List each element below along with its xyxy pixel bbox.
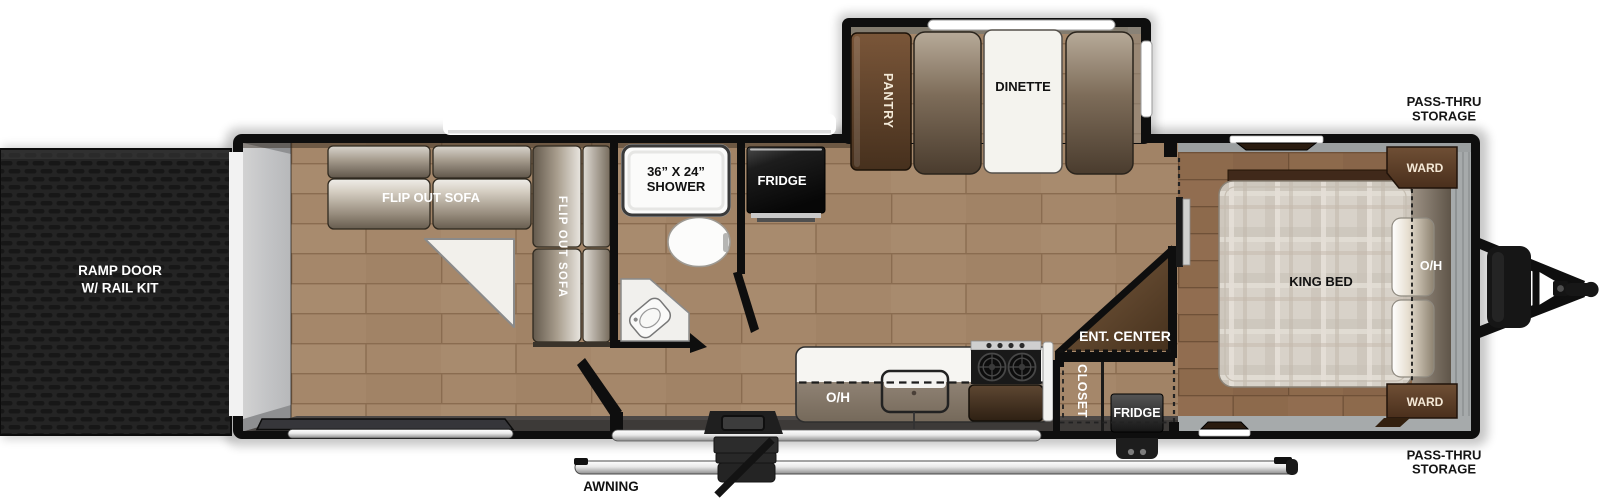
svg-text:KING BED: KING BED: [1289, 274, 1353, 289]
svg-text:FLIP OUT SOFA: FLIP OUT SOFA: [382, 190, 481, 205]
svg-text:O/H: O/H: [1420, 259, 1442, 273]
svg-text:ENT. CENTER: ENT. CENTER: [1079, 328, 1171, 344]
svg-text:WARD: WARD: [1407, 161, 1444, 175]
svg-text:AWNING: AWNING: [583, 479, 639, 494]
svg-text:W/ RAIL KIT: W/ RAIL KIT: [82, 281, 160, 296]
svg-text:FRIDGE: FRIDGE: [757, 173, 806, 188]
svg-text:PASS-THRU: PASS-THRU: [1407, 448, 1482, 463]
svg-text:FLIP OUT SOFA: FLIP OUT SOFA: [556, 196, 568, 298]
svg-text:STORAGE: STORAGE: [1412, 462, 1476, 477]
svg-text:FRIDGE: FRIDGE: [1113, 406, 1160, 420]
svg-text:SHOWER: SHOWER: [647, 179, 706, 194]
svg-text:DINETTE: DINETTE: [995, 79, 1051, 94]
svg-text:36” X 24”: 36” X 24”: [647, 164, 705, 179]
svg-text:PANTRY: PANTRY: [881, 73, 895, 129]
svg-text:CLOSET: CLOSET: [1075, 364, 1089, 418]
svg-text:O/H: O/H: [826, 390, 850, 405]
svg-text:RAMP DOOR: RAMP DOOR: [78, 263, 162, 278]
svg-text:WARD: WARD: [1407, 395, 1444, 409]
svg-text:PASS-THRU: PASS-THRU: [1407, 94, 1482, 109]
svg-text:STORAGE: STORAGE: [1412, 109, 1476, 124]
